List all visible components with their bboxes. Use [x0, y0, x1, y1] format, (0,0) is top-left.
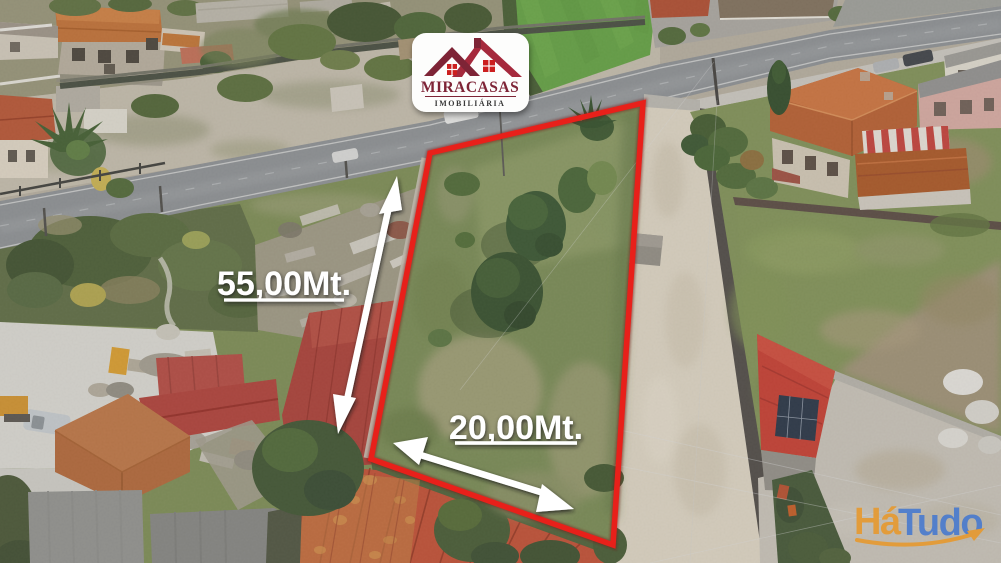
svg-text:IMOBILIÁRIA: IMOBILIÁRIA: [435, 98, 506, 108]
svg-text:55,00Mt.: 55,00Mt.: [217, 265, 351, 303]
svg-text:MIRACASAS: MIRACASAS: [421, 79, 519, 96]
svg-text:Tudo: Tudo: [898, 502, 982, 544]
svg-text:Há: Há: [854, 501, 902, 543]
